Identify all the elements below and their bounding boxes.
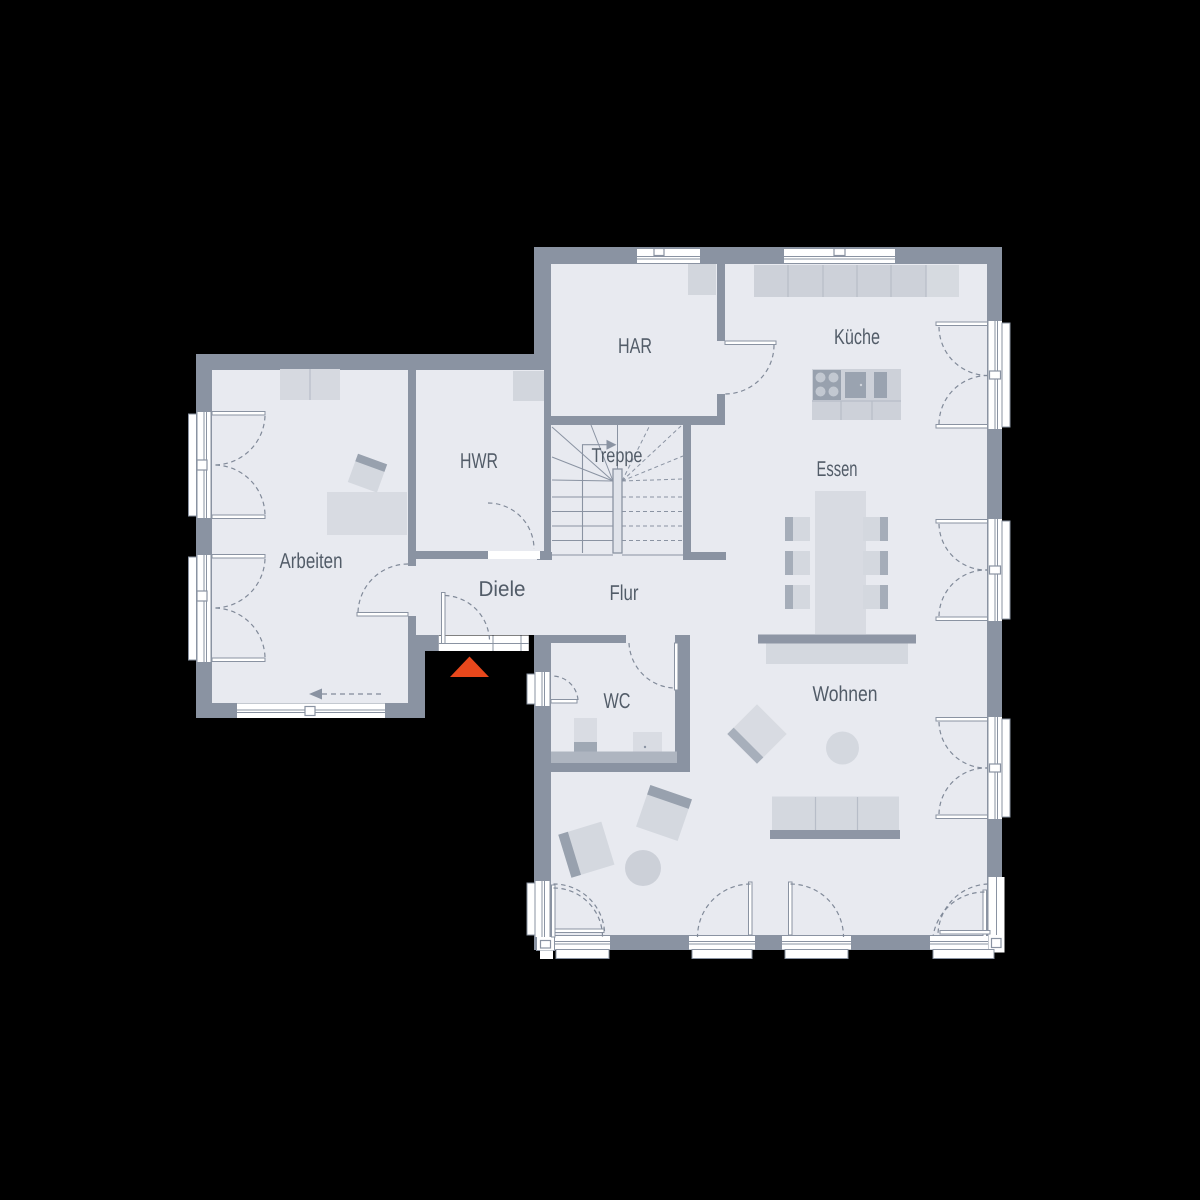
svg-text:Essen: Essen [817, 457, 858, 481]
svg-text:WC: WC [604, 689, 631, 713]
svg-text:Arbeiten: Arbeiten [280, 549, 343, 573]
svg-text:HAR: HAR [618, 334, 652, 358]
svg-text:Treppe: Treppe [592, 445, 643, 467]
svg-text:Wohnen: Wohnen [813, 682, 878, 706]
svg-text:Flur: Flur [610, 581, 639, 605]
svg-text:Diele: Diele [479, 577, 526, 601]
svg-text:Küche: Küche [834, 325, 880, 349]
svg-text:HWR: HWR [460, 449, 498, 473]
